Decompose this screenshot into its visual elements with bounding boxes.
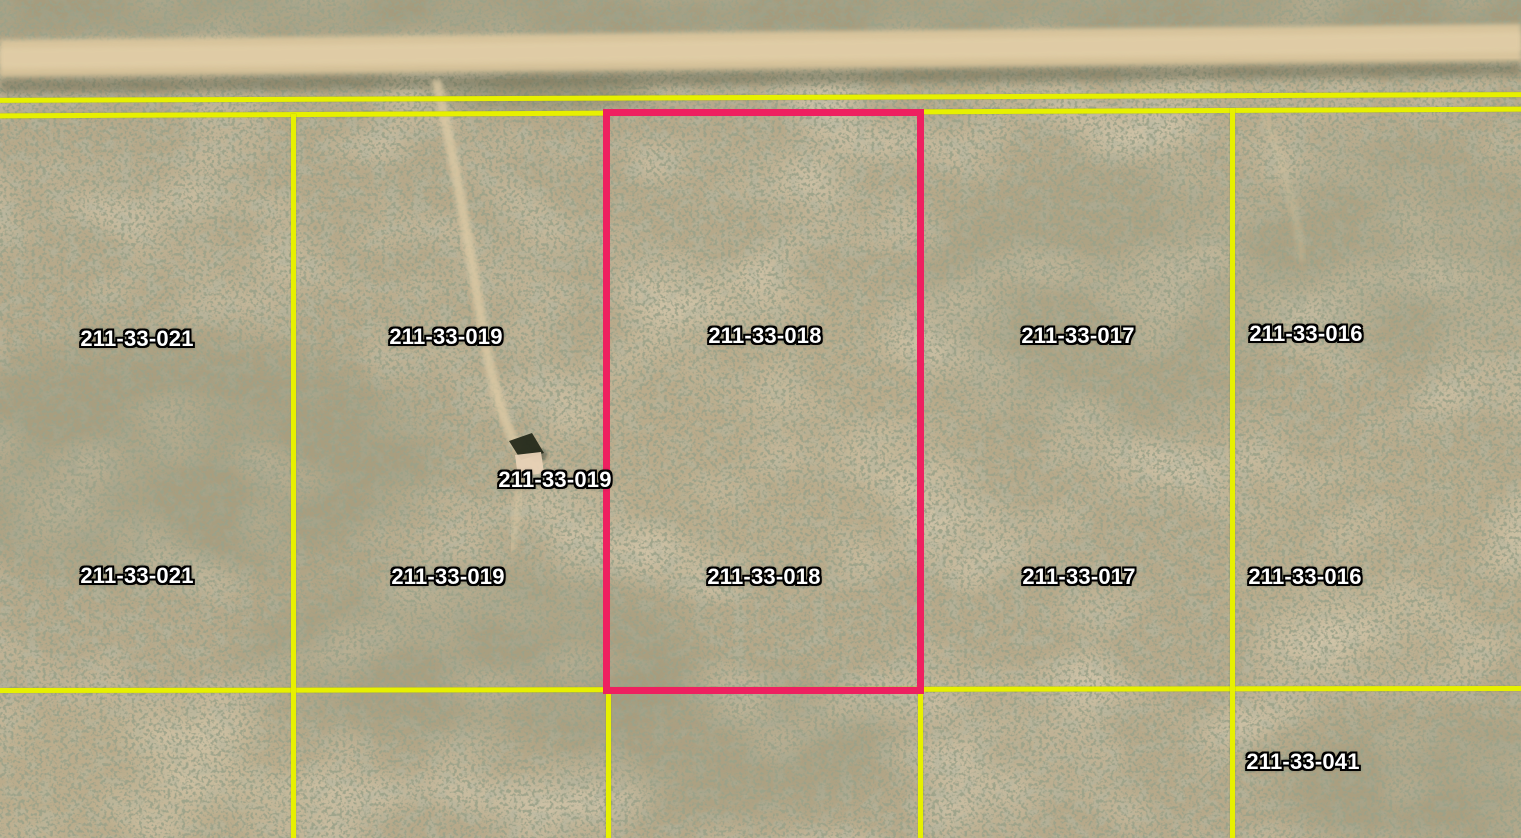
parcel-region-211-33-016[interactable] — [1233, 108, 1521, 689]
parcel-boundary-021-019 — [291, 114, 296, 838]
parcel-boundary-south-east — [918, 688, 923, 838]
parcel-region-211-33-019[interactable] — [292, 116, 607, 689]
parcel-region-211-33-021[interactable] — [0, 116, 292, 689]
parcel-boundary-south-west — [606, 688, 611, 838]
map-viewport: 211-33-021211-33-019211-33-018211-33-017… — [0, 0, 1521, 838]
parcel-boundary-017-016 — [1230, 108, 1235, 838]
parcel-region-211-33-017[interactable] — [921, 110, 1233, 689]
parcel-region-211-33-041[interactable] — [1233, 689, 1521, 838]
selected-parcel-outline-211-33-018[interactable] — [603, 109, 924, 694]
